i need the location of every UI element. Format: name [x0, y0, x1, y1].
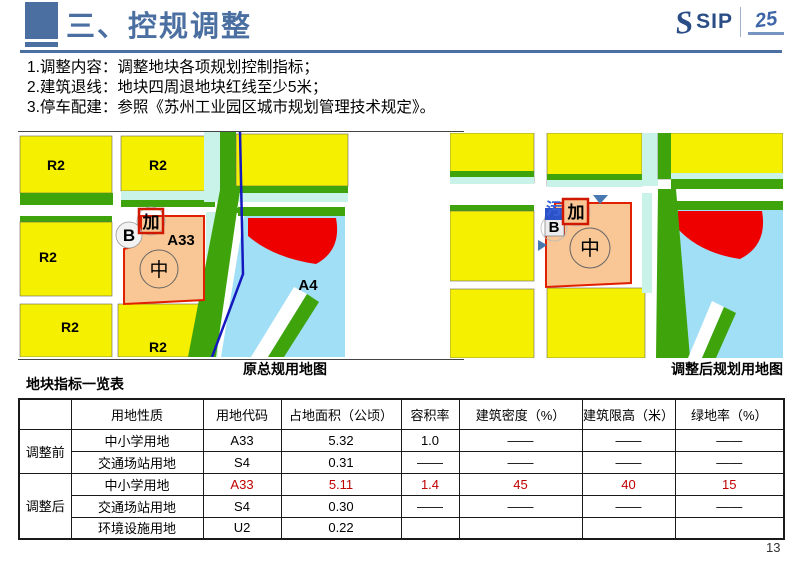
r2-label: R2: [61, 319, 79, 335]
cell: 0.30: [281, 495, 401, 517]
zhong-mark-label: 中: [149, 259, 168, 281]
cell-highlight: 45: [459, 473, 582, 495]
adjusted-plan-map-drawing: 污 加 B 中: [450, 133, 783, 358]
note-line-1: 1.调整内容：调整地块各项规划控制指标；: [27, 58, 435, 78]
cell: ——: [582, 429, 675, 451]
cell: U2: [203, 517, 281, 539]
cell-highlight: 1.4: [401, 473, 459, 495]
cell: 环境设施用地: [71, 517, 203, 539]
cell: [401, 517, 459, 539]
r2-label: R2: [39, 249, 57, 265]
adjusted-map-caption: 调整后规划用地图: [671, 359, 783, 379]
original-map-caption: 原总规用地图: [165, 359, 405, 379]
table-row: 交通场站用地 S4 0.30 —— —— —— ——: [19, 495, 784, 517]
col-header-group: [19, 399, 71, 429]
adjusted-plan-map: 污 加 B 中: [450, 133, 783, 358]
cell-highlight: 40: [582, 473, 675, 495]
cell: ——: [401, 495, 459, 517]
cell: 0.22: [281, 517, 401, 539]
table-row: 调整后 中小学用地 A33 5.11 1.4 45 40 15: [19, 473, 784, 495]
zhong-mark-label: 中: [580, 237, 600, 260]
cell: S4: [203, 495, 281, 517]
wu-mark-label: 污: [546, 199, 562, 218]
header-accent-square: [25, 2, 58, 39]
cell: 1.0: [401, 429, 459, 451]
lake-code-label: A4: [298, 277, 318, 294]
note-line-2: 2.建筑退线：地块四周退地块红线至少5米；: [27, 78, 435, 98]
sip-s-icon: S: [674, 5, 695, 39]
col-header-far: 容积率: [401, 399, 459, 429]
sip-logo: S SIP 25: [675, 6, 784, 38]
cell: ——: [401, 451, 459, 473]
anniversary-tagline-bar: [748, 32, 784, 35]
jia-mark-label: 加: [567, 203, 585, 222]
original-plan-map: R2 R2 R2 R2 R2 B 加 A33 中 A4: [18, 131, 464, 360]
parcel-index-table: 用地性质 用地代码 占地面积（公顷） 容积率 建筑密度（%） 建筑限高（米） 绿…: [18, 398, 785, 540]
sip-logo-text: SIP: [696, 10, 733, 34]
r2-label: R2: [149, 157, 167, 173]
cell: 5.32: [281, 429, 401, 451]
group-label-after: 调整后: [19, 473, 71, 539]
cell-highlight: A33: [203, 473, 281, 495]
header-accent-bar: [25, 42, 58, 47]
cell: S4: [203, 451, 281, 473]
group-label-before: 调整前: [19, 429, 71, 473]
page-number: 13: [766, 540, 780, 555]
header-divider-line: [20, 50, 782, 53]
col-header-density: 建筑密度（%）: [459, 399, 582, 429]
jia-mark-label: 加: [142, 213, 160, 232]
cell: A33: [203, 429, 281, 451]
table-title: 地块指标一览表: [26, 374, 124, 394]
cell-highlight: 15: [675, 473, 784, 495]
cell: 中小学用地: [71, 473, 203, 495]
cell: [459, 517, 582, 539]
note-line-3: 3.停车配建：参照《苏州工业园区城市规划管理技术规定》。: [27, 98, 435, 118]
anniversary-mark: 25: [748, 10, 784, 35]
table-row: 环境设施用地 U2 0.22: [19, 517, 784, 539]
cell: [582, 517, 675, 539]
cell: ——: [675, 495, 784, 517]
cell: ——: [582, 495, 675, 517]
adjustment-notes: 1.调整内容：调整地块各项规划控制指标； 2.建筑退线：地块四周退地块红线至少5…: [27, 58, 435, 118]
col-header-land-use: 用地性质: [71, 399, 203, 429]
cell-highlight: 5.11: [281, 473, 401, 495]
cell: ——: [459, 495, 582, 517]
r2-label: R2: [47, 157, 65, 173]
logo-divider: [740, 7, 741, 37]
original-plan-map-drawing: R2 R2 R2 R2 R2 B 加 A33 中 A4: [18, 132, 364, 357]
cell: ——: [582, 451, 675, 473]
cell: [675, 517, 784, 539]
cell: 0.31: [281, 451, 401, 473]
col-header-height-limit: 建筑限高（米）: [582, 399, 675, 429]
r2-label: R2: [149, 339, 167, 355]
table-header-row: 用地性质 用地代码 占地面积（公顷） 容积率 建筑密度（%） 建筑限高（米） 绿…: [19, 399, 784, 429]
cell: ——: [459, 429, 582, 451]
cell: ——: [459, 451, 582, 473]
cell: 交通场站用地: [71, 495, 203, 517]
cell: 交通场站用地: [71, 451, 203, 473]
b-mark-label: B: [549, 219, 560, 236]
anniversary-number: 25: [754, 8, 779, 31]
table-row: 交通场站用地 S4 0.31 —— —— —— ——: [19, 451, 784, 473]
cell: ——: [675, 451, 784, 473]
cell: ——: [675, 429, 784, 451]
cell: 中小学用地: [71, 429, 203, 451]
b-mark-label: B: [123, 226, 135, 245]
table-row: 调整前 中小学用地 A33 5.32 1.0 —— —— ——: [19, 429, 784, 451]
parcel-code-label: A33: [167, 232, 195, 249]
col-header-green-ratio: 绿地率（%）: [675, 399, 784, 429]
page-title: 三、控规调整: [66, 3, 252, 45]
col-header-code: 用地代码: [203, 399, 281, 429]
col-header-area: 占地面积（公顷）: [281, 399, 401, 429]
